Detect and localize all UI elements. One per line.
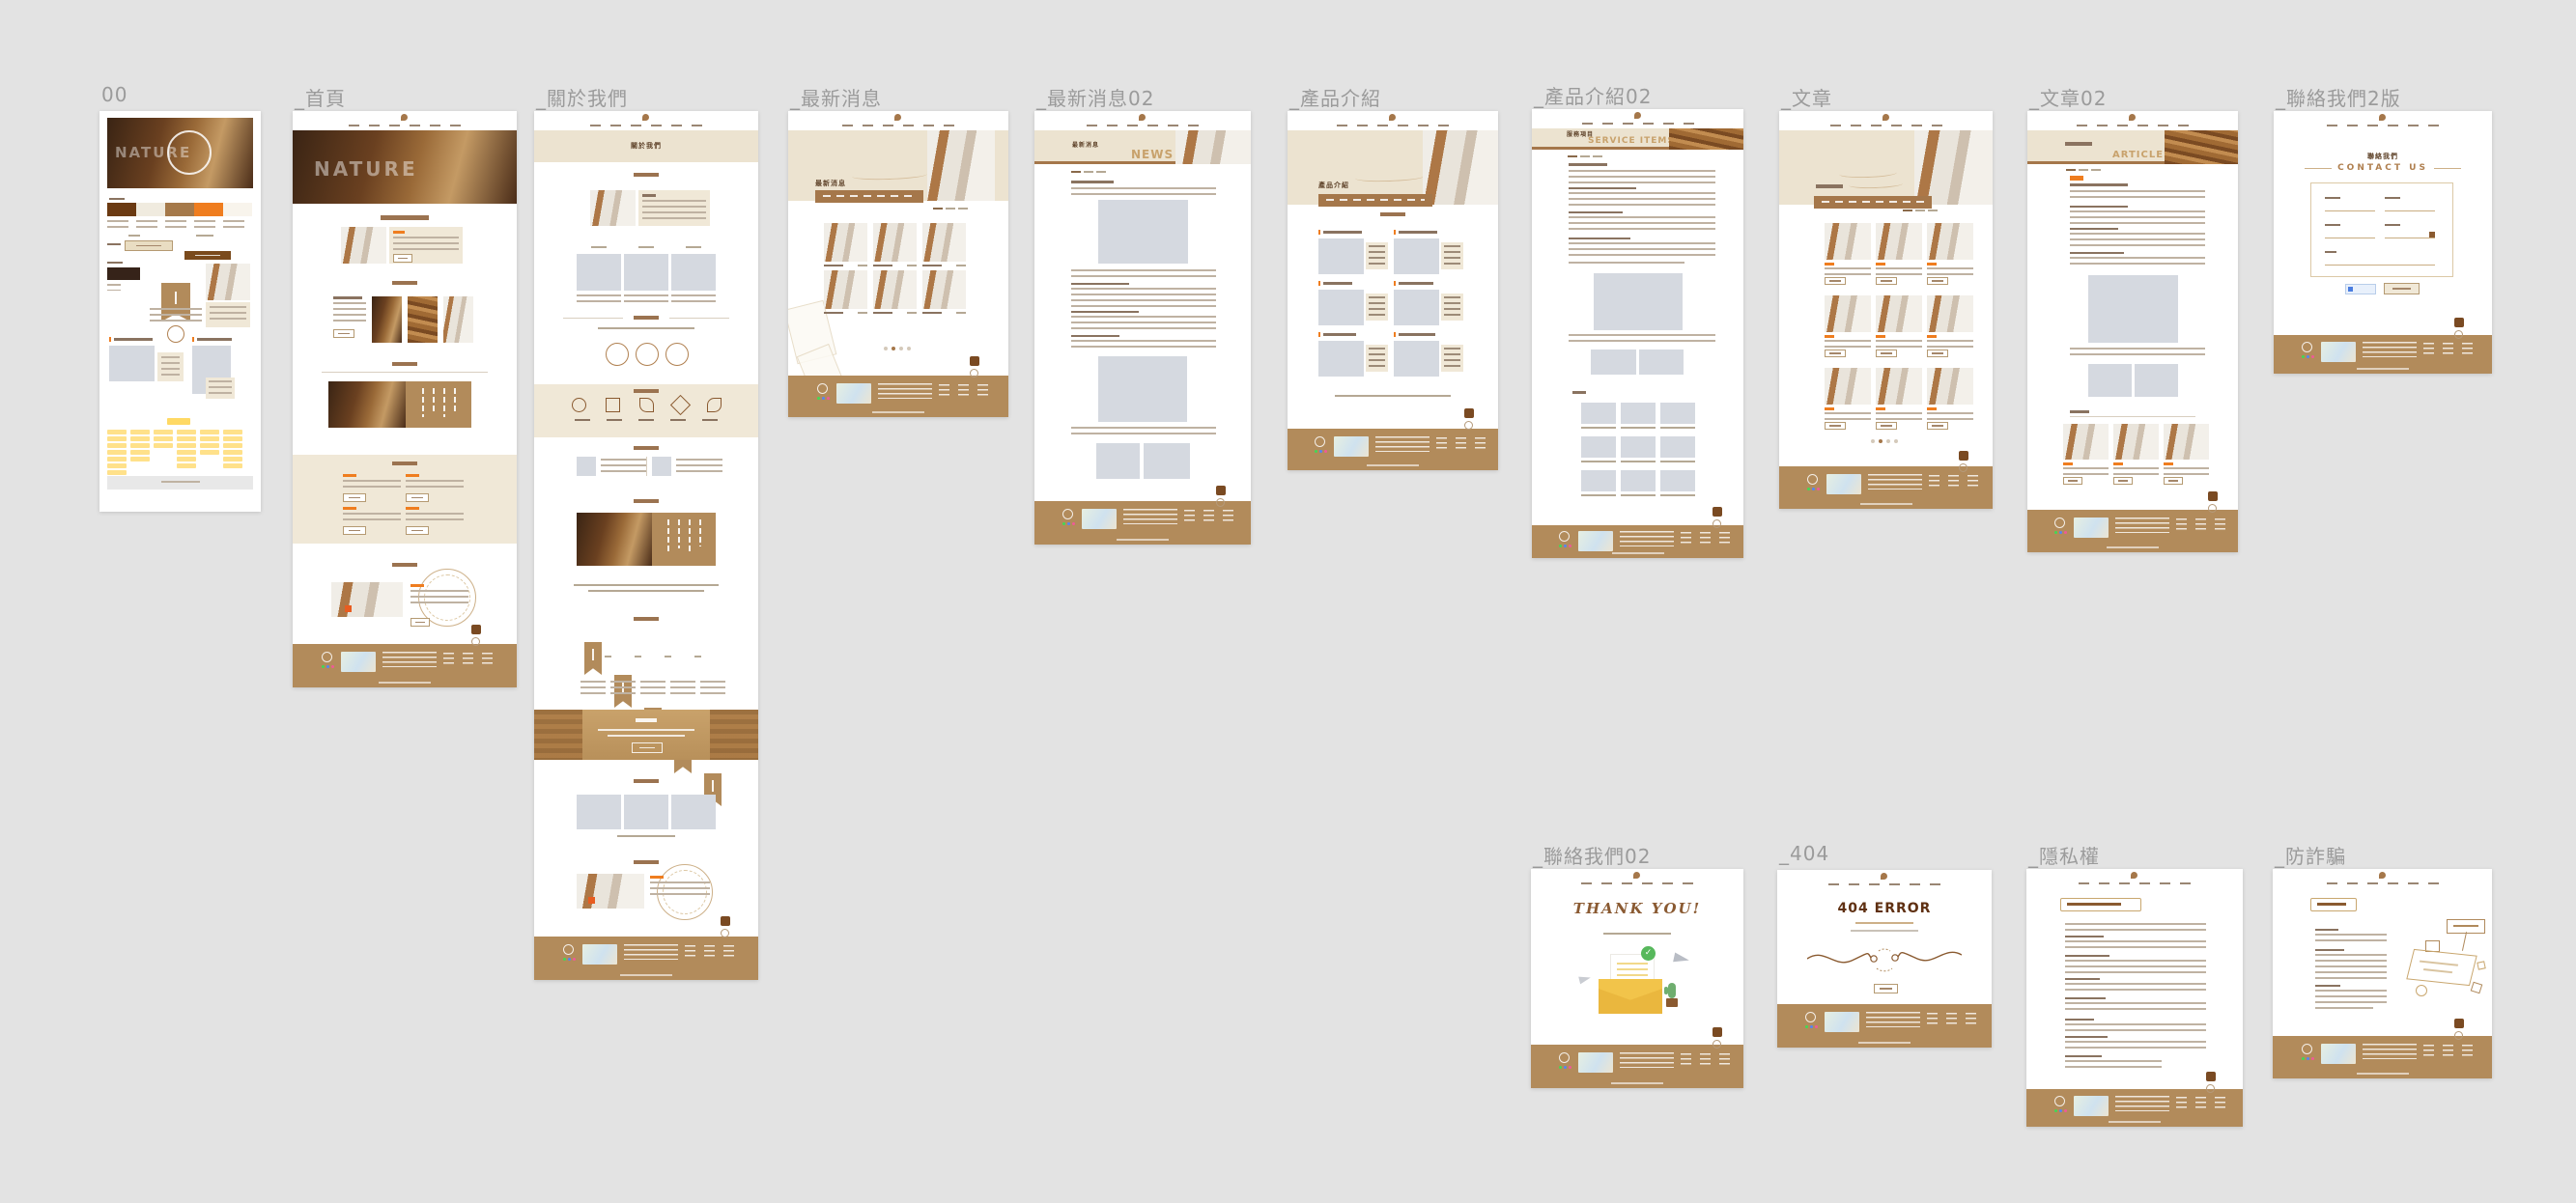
footer-brand (1559, 1052, 1571, 1069)
footer-contact-info (382, 652, 437, 667)
instagram-icon (331, 665, 334, 668)
footer-map (836, 383, 871, 404)
page-header (2027, 111, 2238, 130)
main-nav (2079, 882, 2191, 884)
scroll-top-button (1216, 498, 1225, 507)
main-nav (1830, 125, 1942, 126)
footer-brand (2054, 1096, 2067, 1112)
frame-label[interactable]: _隱私權 (2028, 841, 2100, 869)
footer-content (1559, 531, 1730, 551)
site-logo-icon (1881, 873, 1887, 880)
news-card (922, 223, 966, 266)
facebook-icon (2059, 531, 2062, 534)
footer-contact-info (2115, 1096, 2169, 1111)
field-label-phone (2385, 197, 2400, 199)
frame-label[interactable]: _文章02 (2029, 83, 2107, 111)
thank-you-title: THANK YOU! (1531, 900, 1743, 917)
scroll-top-button (2454, 330, 2463, 339)
field-label-name (2325, 197, 2340, 199)
column-caption (686, 246, 701, 248)
frame-contact-thanks[interactable]: _聯絡我們02 THANK YOU! ✓ (1531, 869, 1743, 1088)
paragraph (2070, 257, 2205, 268)
phone-input[interactable] (2385, 210, 2435, 211)
page-header (293, 111, 517, 130)
frame-articles[interactable]: _文章 (1779, 111, 1993, 509)
news-item (343, 474, 401, 502)
intro-image (341, 227, 386, 264)
instagram-icon (2311, 355, 2314, 358)
frame-label[interactable]: 00 (101, 83, 127, 106)
article-paragraph (1071, 316, 1216, 331)
frame-label[interactable]: _聯絡我們02 (1533, 841, 1651, 869)
footer-links (2176, 1097, 2225, 1108)
section-heading (634, 446, 659, 450)
image-placeholder (671, 795, 716, 829)
floating-contact-button (1464, 408, 1474, 418)
instagram-icon (1815, 1025, 1818, 1028)
divider (646, 457, 647, 476)
dark-color-label (107, 262, 123, 264)
service-icon (606, 398, 620, 412)
column-caption (591, 246, 607, 248)
floating-buttons (2205, 1072, 2216, 1093)
footer-logo-icon (1805, 1012, 1816, 1022)
footer-links (2423, 1045, 2473, 1056)
center-text (574, 584, 719, 586)
article-card (1876, 295, 1922, 357)
frame-label[interactable]: _首頁 (295, 83, 346, 111)
footer-logo-icon (1559, 1052, 1570, 1063)
button-row-label (107, 243, 121, 245)
section-heading (634, 779, 659, 783)
footer-copyright (1611, 1082, 1663, 1084)
banner-photo (1175, 130, 1251, 164)
scroll-top-button (471, 637, 480, 646)
fraud-notice-text (2315, 929, 2387, 1013)
facebook-icon (1319, 450, 1322, 453)
gallery-item (1660, 436, 1695, 462)
gallery-item (1660, 403, 1695, 429)
success-check-icon: ✓ (1641, 946, 1656, 961)
frame-404[interactable]: _404 404 ERROR (1777, 870, 1992, 1048)
footer-copyright (1860, 503, 1912, 505)
banner-english-title: ARTICLES (2112, 150, 2171, 160)
footer-brand (2054, 518, 2067, 534)
contact-heading-wrap: 聯絡我們 (2274, 144, 2492, 162)
main-nav (2077, 125, 2189, 126)
wireframe1-note (157, 352, 184, 381)
about-photo (331, 582, 403, 617)
article-subhead (1071, 283, 1129, 285)
frame-label[interactable]: _產品介紹 (1289, 83, 1381, 111)
page-banner: 產品介紹 (1288, 128, 1498, 205)
article-card (1825, 223, 1871, 285)
instagram-icon (1569, 1066, 1571, 1069)
contact-form[interactable] (2310, 182, 2453, 277)
cta-banner (534, 710, 758, 760)
about-button (410, 618, 430, 627)
section-heading (381, 215, 429, 220)
news-item (406, 474, 464, 502)
footer-contact-info (1868, 474, 1922, 490)
instagram-icon (1072, 522, 1075, 525)
footer-copyright (2357, 1073, 2409, 1075)
about-image (590, 190, 636, 226)
footer-logo-icon (2302, 1044, 2312, 1054)
pagination (884, 347, 911, 350)
news-item (406, 507, 464, 535)
footer-logo-icon (563, 944, 574, 955)
footer-brand (1062, 509, 1075, 525)
frame-label[interactable]: _文章 (1781, 83, 1832, 111)
about-text (410, 590, 468, 605)
page-header (1779, 111, 1993, 130)
banner-script-decoration (1355, 172, 1425, 183)
footer-logo-icon (1062, 509, 1073, 519)
step-arrow (635, 656, 641, 657)
social-icons (1807, 488, 1820, 490)
frame-about[interactable]: _關於我們 關於我們 (534, 111, 758, 980)
page-footer (1288, 429, 1498, 470)
article-subhead (1071, 335, 1119, 337)
caption-text (671, 294, 716, 302)
floating-buttons (2453, 1019, 2464, 1040)
site-logo-icon (401, 114, 408, 121)
step-caption (700, 681, 725, 696)
footer-content (2302, 1044, 2473, 1064)
news-card (873, 223, 917, 266)
feature-title (333, 296, 362, 299)
floating-contact-button (2454, 1019, 2464, 1028)
gallery-caption (617, 835, 675, 837)
showcase-panel (406, 381, 471, 428)
footer-map (2321, 342, 2356, 362)
footer-brand (1807, 474, 1820, 490)
image-placeholder (624, 254, 668, 291)
facebook-icon (1812, 488, 1815, 490)
banner-text-bar (815, 190, 923, 203)
main-nav (1828, 883, 1940, 885)
frame-news-list[interactable]: _最新消息 最新消息 (788, 111, 1008, 417)
step-arrow (665, 656, 671, 657)
select-dropdown-icon[interactable] (2429, 232, 2435, 238)
floating-contact-button (1713, 1027, 1722, 1037)
footer-map (1082, 509, 1117, 529)
title-rule-left (2305, 168, 2332, 169)
about-photo (577, 874, 644, 909)
gallery-item (1621, 470, 1656, 496)
footer-copyright (1367, 464, 1419, 466)
footer-logo-icon (817, 383, 828, 394)
scroll-top-button (2206, 1084, 2215, 1093)
hero-image: NATURE (293, 130, 517, 204)
news-card (824, 223, 867, 266)
error-subtitle (1855, 922, 1913, 924)
footer-map (1826, 474, 1861, 494)
subject-select[interactable] (2385, 238, 2435, 238)
frame-label[interactable]: _最新消息 (790, 83, 882, 111)
floating-buttons (1958, 451, 1968, 472)
social-icons (2054, 531, 2067, 534)
footer-contact-info (1123, 509, 1177, 524)
banner-script-decoration (1839, 168, 1897, 179)
frame-products-detail[interactable]: _產品介紹02 服務項目 SERVICE ITEMS (1532, 109, 1743, 558)
frame-label[interactable]: _最新消息02 (1036, 83, 1154, 111)
swatch-hex-labels (107, 220, 244, 228)
footer-copyright (1117, 539, 1169, 541)
frame-home[interactable]: _首頁 NATURE (293, 111, 517, 687)
gallery-item (1660, 470, 1695, 496)
footer-logo-icon (1559, 531, 1570, 542)
swatch-offwhite (223, 203, 252, 216)
banner-title: 最新消息 (815, 179, 846, 188)
floating-buttons (2453, 318, 2464, 339)
article-image (1098, 356, 1187, 422)
breadcrumb (1903, 210, 1938, 211)
article-card (1876, 368, 1922, 430)
frame-anti-fraud[interactable]: _防詐騙 (2273, 869, 2492, 1078)
footer-contact-info (1375, 436, 1430, 452)
center-text (588, 590, 704, 592)
news-card (824, 270, 867, 314)
floating-buttons (1463, 408, 1474, 430)
related-heading (2070, 410, 2089, 413)
instagram-icon (2311, 1057, 2314, 1060)
frame-articles-detail[interactable]: _文章02 ARTICLES (2027, 111, 2238, 552)
footer-bar-sample (107, 476, 253, 490)
article-paragraph (1071, 340, 1216, 351)
plant-pot (1666, 998, 1678, 1007)
main-nav (1581, 882, 1693, 884)
gallery-item (1581, 403, 1616, 429)
footer-brand (322, 652, 334, 668)
divider (322, 372, 488, 373)
scroll-top-button (1959, 463, 1967, 472)
floating-contact-button (2206, 1072, 2216, 1081)
news-card (873, 270, 917, 314)
page-header (1532, 109, 1743, 128)
page-footer (2026, 1089, 2243, 1127)
message-input[interactable] (2325, 265, 2435, 266)
gallery-heading (1572, 391, 1586, 394)
main-nav (590, 125, 702, 126)
frame-contact[interactable]: _聯絡我們2版 聯絡我們 CONTACT US (2274, 111, 2492, 374)
footer-map (1578, 531, 1613, 551)
floating-contact-button (2454, 318, 2464, 327)
frame-label[interactable]: _聯絡我們2版 (2276, 83, 2401, 111)
paragraph (2070, 190, 2205, 202)
step-caption (640, 681, 665, 696)
step-caption (580, 681, 606, 696)
floating-buttons (2207, 491, 2218, 513)
ribbon-notes (150, 308, 202, 322)
image-placeholder (671, 254, 716, 291)
sketch-square (2471, 982, 2483, 994)
gallery-item (1621, 403, 1656, 429)
breadcrumb (1568, 155, 1602, 157)
footer-copyright (2357, 368, 2409, 370)
paragraph (1569, 262, 1684, 267)
footer-brand (2302, 1044, 2314, 1060)
step-caption (670, 681, 695, 696)
recaptcha-widget[interactable] (2345, 284, 2376, 294)
article-subhead (1071, 311, 1139, 313)
field-label-message (2325, 251, 2336, 253)
page-footer (2027, 510, 2238, 552)
frame-products[interactable]: _產品介紹 產品介紹 (1288, 111, 1498, 470)
banner-title: 關於我們 (631, 142, 662, 150)
page-title-badge (2060, 898, 2141, 911)
showcase-photo (328, 381, 406, 428)
service-icon (639, 398, 654, 412)
error-title: 404 ERROR (1777, 901, 1992, 916)
main-nav (1087, 125, 1199, 126)
line-icon (2302, 1057, 2305, 1060)
frame-styleguide[interactable]: 00 NATURE (99, 111, 261, 512)
about-title (650, 876, 664, 879)
section-heading (392, 563, 417, 567)
scroll-top-button (2208, 504, 2217, 513)
footer-links (1681, 1053, 1730, 1065)
wireframe2-title (197, 338, 232, 341)
facebook-icon (2307, 1057, 2309, 1060)
footer-contact-info (2115, 518, 2169, 533)
site-logo-icon (1882, 114, 1889, 121)
point-thumb (652, 457, 671, 476)
footer-content (817, 383, 988, 404)
footer-copyright (2107, 546, 2159, 548)
point-text (676, 459, 722, 472)
gallery-item (1581, 436, 1616, 462)
footer-map (341, 652, 376, 672)
banner-photo (2165, 128, 2238, 164)
scroll-top-button (970, 369, 978, 378)
site-logo-icon (2129, 114, 2136, 121)
frame-label[interactable]: _關於我們 (536, 83, 628, 111)
site-logo-icon (2379, 872, 2386, 879)
contact-title-row: CONTACT US (2274, 163, 2492, 173)
article-image (1591, 350, 1636, 375)
banner-photo (1423, 128, 1498, 205)
section-heading (392, 281, 417, 285)
instagram-icon (1569, 545, 1571, 547)
footer-copyright (2109, 1121, 2161, 1123)
article-image (1144, 443, 1190, 479)
banner-english-title: NEWS (1131, 148, 1174, 161)
footer-brand (1805, 1012, 1818, 1028)
footer-links (1436, 437, 1486, 449)
page-header (2274, 111, 2492, 130)
feature-button (333, 329, 354, 338)
banner-text-bar (1814, 196, 1932, 209)
footer-map (1578, 1052, 1613, 1073)
site-logo-icon (1633, 872, 1640, 879)
step-arrow (694, 656, 701, 657)
back-home-button[interactable] (1874, 984, 1898, 993)
article-card (2164, 424, 2209, 485)
submit-button[interactable] (2384, 283, 2420, 294)
article-image (2088, 364, 2132, 397)
floating-contact-button (1216, 486, 1226, 495)
article-card-grid (1825, 223, 1973, 430)
cta-title (636, 718, 657, 722)
frame-label[interactable]: _防詐騙 (2275, 841, 2346, 869)
page-footer (1779, 466, 1993, 509)
sitemap-root (167, 418, 190, 425)
site-logo-icon (642, 114, 649, 121)
footer-content (1807, 474, 1978, 494)
main-nav (2327, 882, 2439, 884)
services-strip (534, 384, 758, 437)
line-icon (1807, 488, 1810, 490)
footer-logo-icon (1807, 474, 1818, 485)
instagram-icon (827, 397, 830, 400)
service-captions (534, 419, 758, 421)
social-icons (322, 665, 334, 668)
paragraph (1569, 242, 1715, 258)
card-sample-text (206, 302, 250, 327)
article-card (1825, 368, 1871, 430)
footer-content (2054, 518, 2225, 538)
footer-contact-info (624, 944, 678, 960)
feature-text (333, 302, 366, 323)
site-logo-icon (894, 114, 901, 121)
section-heading (634, 173, 659, 177)
page-footer (534, 937, 758, 980)
about-text-panel (638, 190, 710, 226)
page-header (2273, 869, 2492, 888)
name-input[interactable] (2325, 210, 2375, 211)
sketch-square (2477, 961, 2485, 969)
article-image (1096, 443, 1140, 479)
article-card (1876, 223, 1922, 285)
page-banner (1779, 130, 1993, 205)
email-input[interactable] (2325, 238, 2375, 238)
showcase-panel (652, 513, 716, 566)
paragraph (1569, 170, 1715, 183)
frame-privacy[interactable]: _隱私權 (2026, 869, 2243, 1127)
news-item (343, 507, 401, 535)
facebook-icon (822, 397, 825, 400)
floating-buttons (969, 356, 979, 378)
subhead (1569, 238, 1630, 239)
frame-news-detail[interactable]: _最新消息02 最新消息 NEWS (1034, 111, 1251, 545)
instagram-icon (573, 958, 576, 961)
pagination (1871, 439, 1898, 443)
paragraph (1569, 216, 1715, 234)
social-icons (1315, 450, 1327, 453)
subhead (2070, 206, 2128, 208)
unplugged-cable-illustration (1807, 939, 1962, 976)
envelope-illustration: ✓ (1579, 946, 1695, 1028)
dark-color-hex (107, 284, 121, 291)
page-header (1777, 870, 1992, 889)
scam-illustration (2408, 919, 2487, 1016)
image-placeholder (624, 795, 668, 829)
column-caption (638, 246, 654, 248)
frame-label[interactable]: _產品介紹02 (1534, 81, 1652, 109)
floating-buttons (470, 625, 481, 646)
floating-contact-button (970, 356, 979, 366)
section-heading (634, 617, 659, 621)
gallery-item (1581, 470, 1616, 496)
value-circle (606, 343, 629, 366)
thank-you-subtext (1603, 933, 1671, 935)
divider (669, 318, 729, 319)
frame-label[interactable]: _404 (1779, 842, 1829, 865)
footer-content (563, 944, 734, 965)
shelf-right (710, 710, 758, 760)
